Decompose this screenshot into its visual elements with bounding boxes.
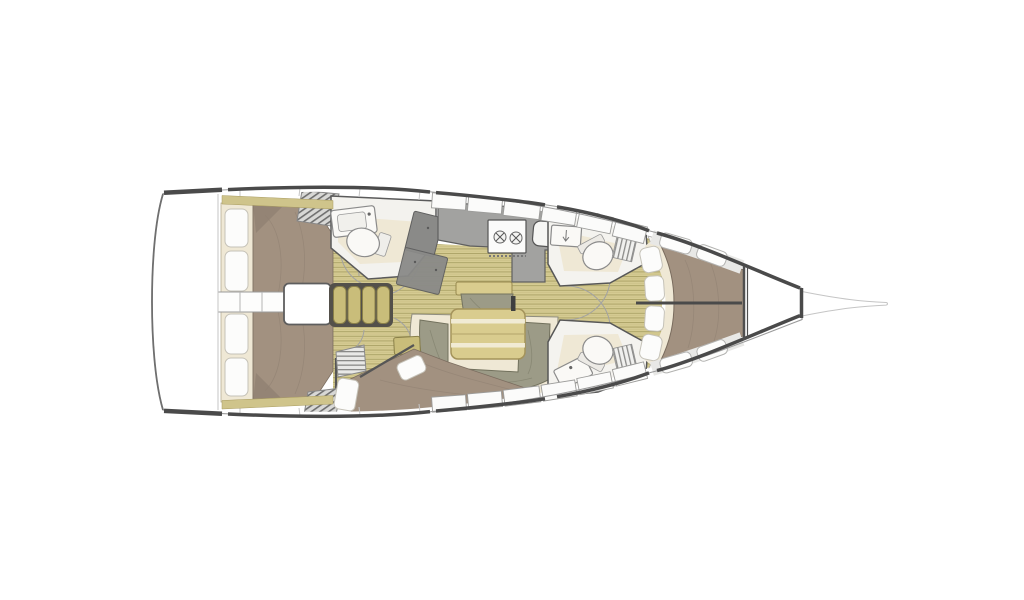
port-settee: [329, 283, 393, 327]
pillow: [225, 358, 248, 396]
pillow: [225, 251, 248, 291]
yacht-floor-plan: [0, 0, 1024, 600]
stove-burner: [494, 231, 506, 243]
settee-cushion: [363, 287, 376, 324]
seat-back-board: [456, 282, 512, 295]
berth-extension-strip: [218, 292, 284, 312]
pillow: [225, 209, 248, 247]
stove-burner: [510, 232, 522, 244]
salon-table: [451, 309, 525, 359]
bowsprit: [802, 292, 888, 317]
settee-cushion: [334, 287, 347, 324]
settee-cushion: [377, 287, 390, 324]
pillow: [644, 275, 665, 301]
pillow: [225, 314, 248, 354]
mast-step: [511, 296, 516, 311]
engine-box: [284, 284, 331, 325]
pillow: [644, 305, 665, 331]
floor-plan-canvas: [0, 0, 1024, 600]
settee-cushion: [348, 287, 361, 324]
